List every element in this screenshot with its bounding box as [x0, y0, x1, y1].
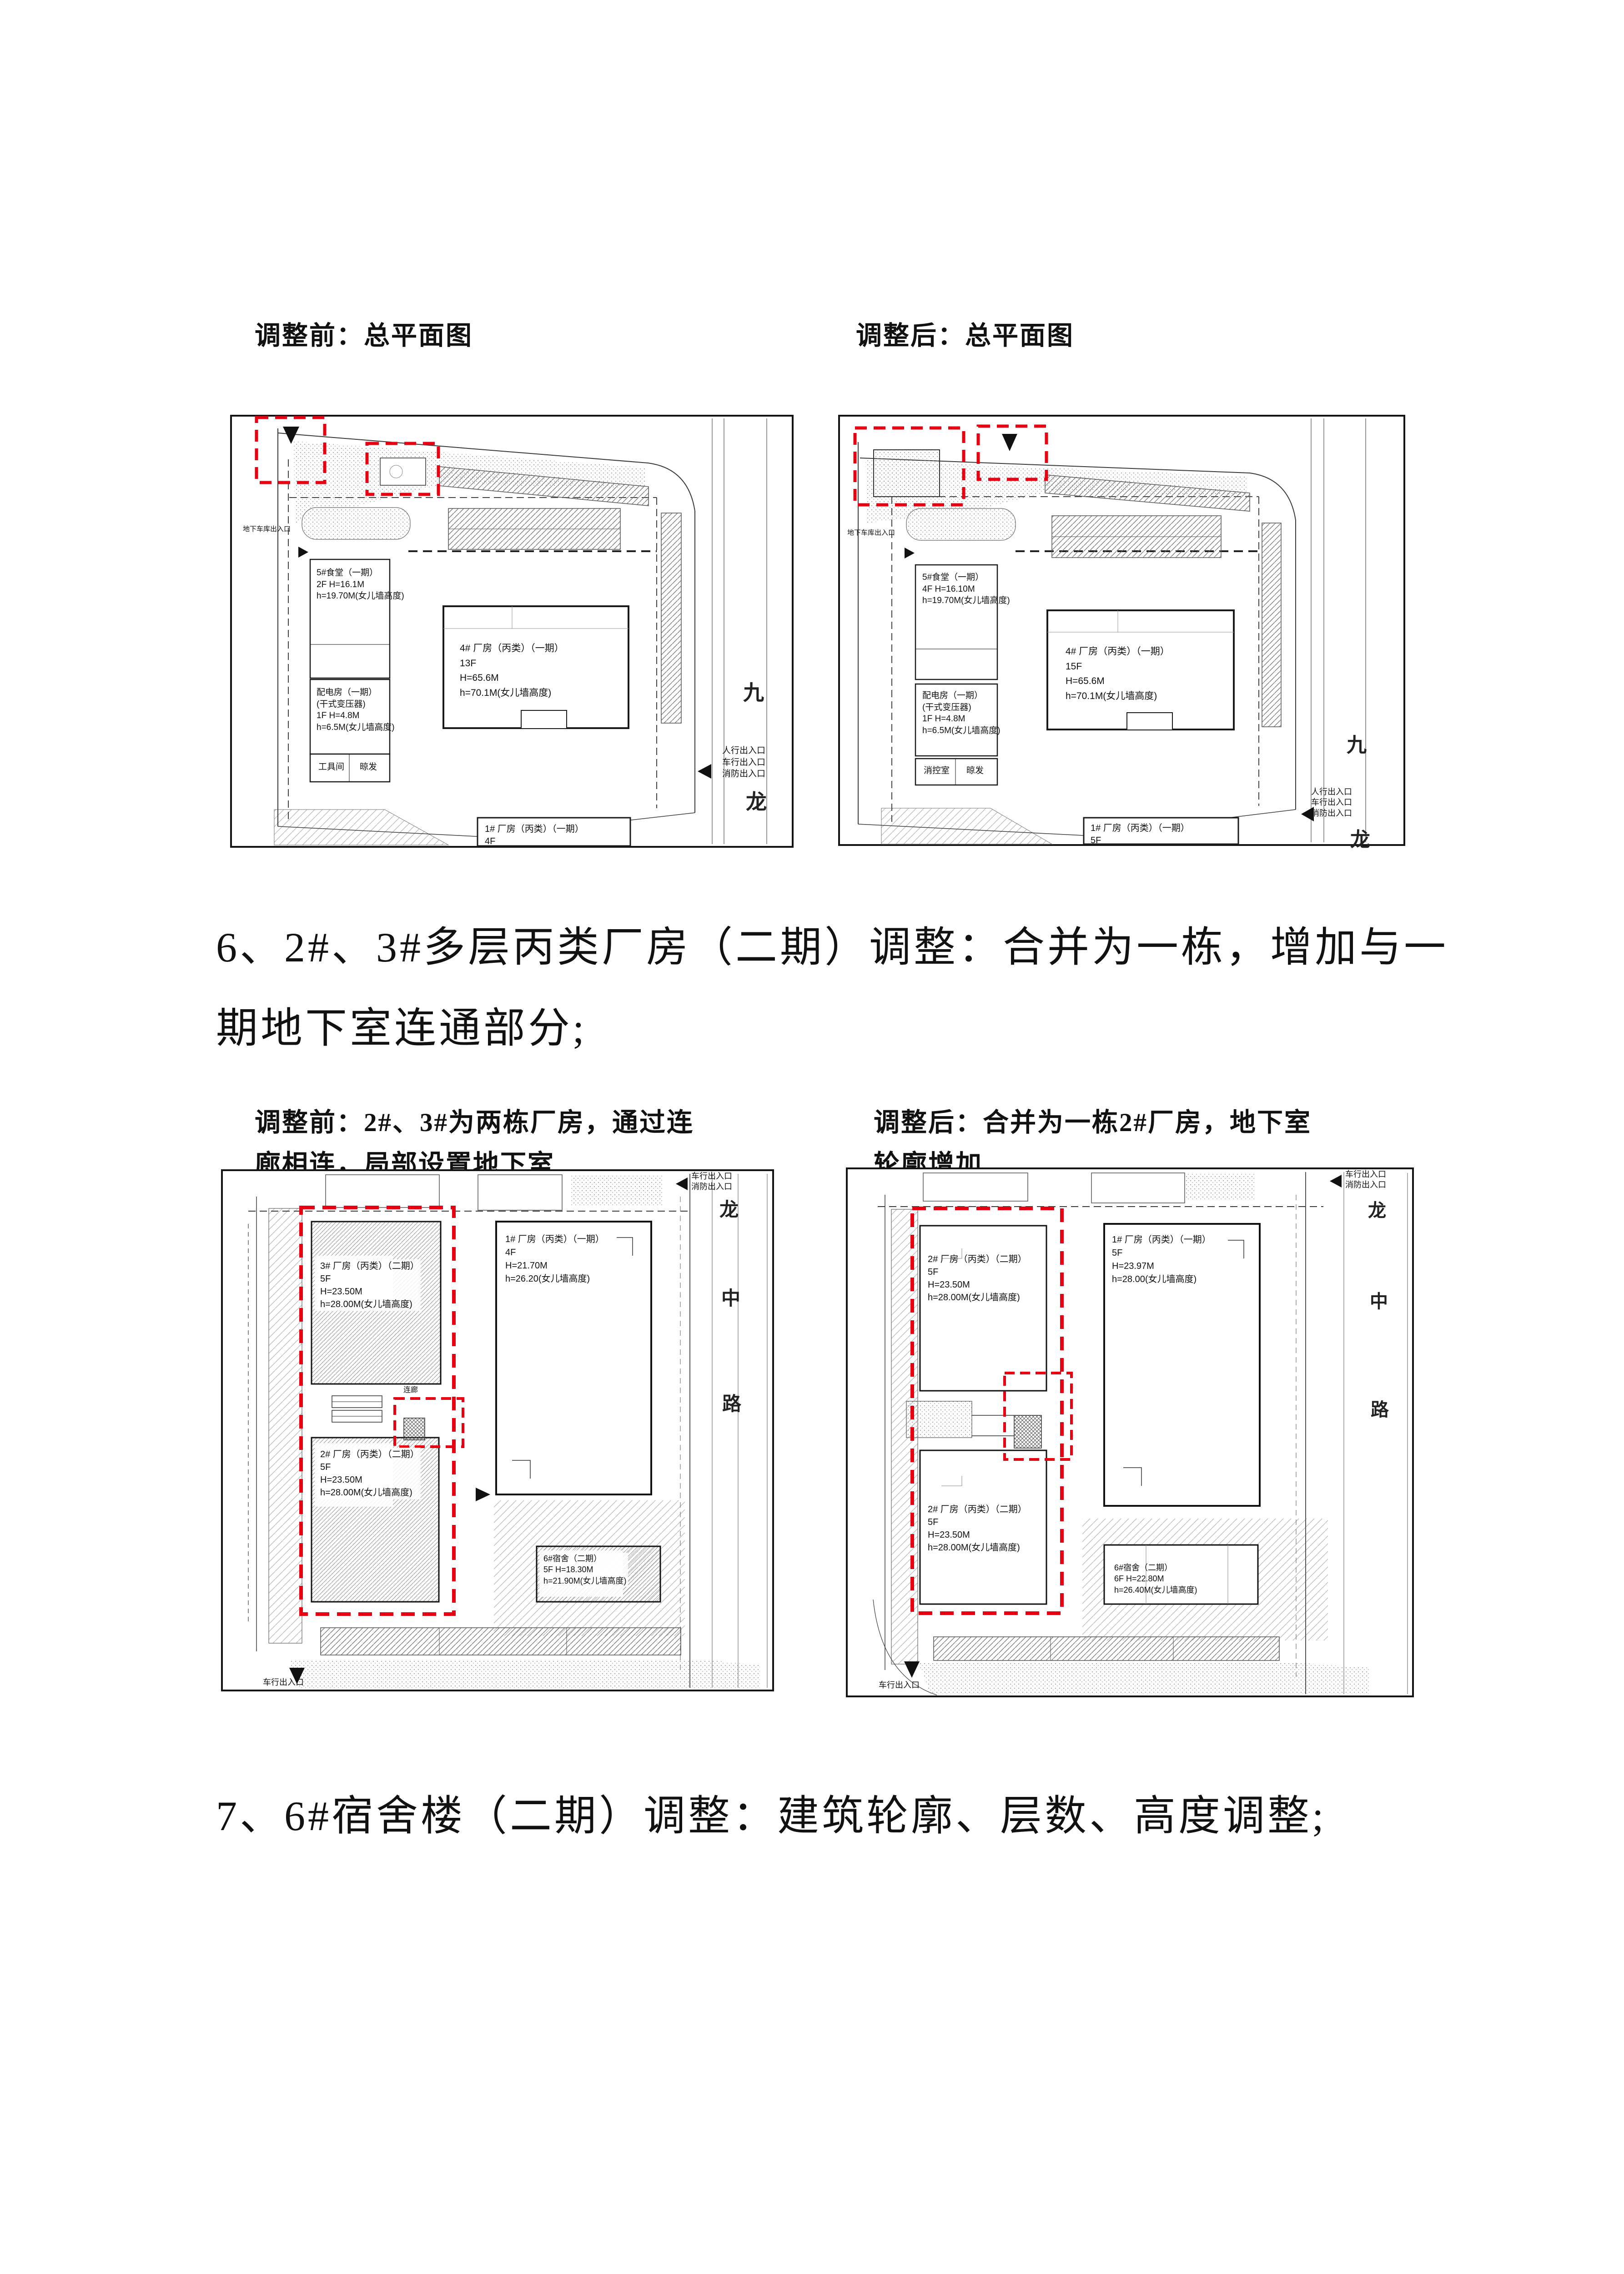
label-factory1: 1# 厂房（丙类）（一期）4F — [485, 823, 584, 848]
document-page: 调整前：总平面图 调整后：总平面图 — [0, 0, 1624, 2274]
label-corridor: 连廊 — [402, 1385, 419, 1396]
paragraph-7-line1: 7、6#宿舍楼（二期）调整：建筑轮廓、层数、高度调整; — [216, 1782, 1327, 1842]
label-factory3: 3# 厂房（丙类）（二期）5FH=23.50Mh=28.00M(女儿墙高度) — [319, 1259, 421, 1311]
label-factory2: 2# 厂房（丙类）（二期）5FH=23.50Mh=28.00M(女儿墙高度) — [319, 1448, 421, 1499]
road-name-longzhong-char1: 龙 — [1368, 1196, 1386, 1222]
caption-after-detail-line1: 调整后：合并为一栋2#厂房，地下室 — [874, 1102, 1312, 1139]
caption-after-total: 调整后：总平面图 — [856, 315, 1074, 352]
label-factory1: 1# 厂房（丙类）（一期）4FH=21.70Mh=26.20(女儿墙高度) — [505, 1233, 604, 1286]
label-factory2-south: 2# 厂房（丙类）（二期）5FH=23.50Mh=28.00M(女儿墙高度) — [928, 1503, 1027, 1554]
road-name-longzhong-char2: 中 — [1370, 1287, 1388, 1313]
label-entrances-top: 车行出入口消防出入口 — [1345, 1169, 1386, 1191]
road-name-jiulong-char1: 九 — [743, 676, 764, 706]
label-laundry: 晾发 — [360, 761, 377, 773]
parking-areas — [934, 1637, 1279, 1660]
label-entrance-bottom: 车行出入口 — [879, 1680, 920, 1690]
site-plan-before-total-linework — [230, 415, 794, 848]
road-name-longzhong-char2: 中 — [721, 1283, 740, 1311]
caption-before-total: 调整前：总平面图 — [255, 315, 473, 352]
label-factory2-north: 2# 厂房（丙类）（二期）5FH=23.50Mh=28.00M(女儿墙高度) — [928, 1253, 1027, 1304]
site-plan-before-detail: 3# 厂房（丙类）（二期）5FH=23.50Mh=28.00M(女儿墙高度) 2… — [221, 1169, 774, 1691]
road-name-jiulong-char1: 九 — [1347, 729, 1367, 758]
label-garage-entry: 地下车库出入口 — [847, 528, 895, 538]
label-entrances-top: 车行出入口消防出入口 — [691, 1171, 732, 1192]
label-entrances: 人行出入口车行出入口消防出入口 — [1311, 787, 1352, 819]
parking-areas — [321, 1628, 681, 1655]
label-factory4: 4# 厂房（丙类）（一期）15FH=65.6Mh=70.1M(女儿墙高度) — [1066, 644, 1170, 704]
label-factory4: 4# 厂房（丙类）（一期）13FH=65.6Mh=70.1M(女儿墙高度) — [460, 641, 564, 700]
site-plan-before-total: 5#食堂（一期）2F H=16.1Mh=19.70M(女儿墙高度) 配电房（一期… — [230, 415, 794, 848]
site-plan-before-detail-linework — [221, 1169, 774, 1691]
road-name-jiulong-char2: 龙 — [746, 785, 767, 815]
site-plan-after-total: 5#食堂（一期）4F H=16.10Mh=19.70M(女儿墙高度) 配电房（一… — [838, 415, 1405, 846]
site-plan-after-detail: 2# 厂房（丙类）（二期）5FH=23.50Mh=28.00M(女儿墙高度) 2… — [846, 1167, 1414, 1697]
label-laundry: 晾发 — [966, 765, 984, 777]
label-power-room: 配电房（一期）(干式变压器)1F H=4.8Mh=6.5M(女儿墙高度) — [922, 690, 1001, 737]
road-name-jiulong-char2: 龙 — [1350, 823, 1370, 852]
removed-structure — [380, 458, 426, 485]
label-canteen: 5#食堂（一期）4F H=16.10Mh=19.70M(女儿墙高度) — [922, 572, 1010, 607]
label-fire-control-room: 消控室 — [924, 765, 950, 777]
new-structure — [874, 450, 940, 497]
label-factory1: 1# 厂房（丙类）（一期）5F — [1091, 822, 1190, 847]
paragraph-6-line1: 6、2#、3#多层丙类厂房（二期）调整：合并为一栋，增加与一 — [216, 913, 1448, 974]
road-name-longzhong-char3: 路 — [722, 1389, 741, 1416]
basement-structure — [404, 1418, 425, 1440]
label-dorm6: 6#宿舍（二期）5F H=18.30Mh=21.90M(女儿墙高度) — [542, 1553, 628, 1587]
label-entrances: 人行出入口车行出入口消防出入口 — [722, 745, 765, 780]
label-power-room: 配电房（一期）(干式变压器)1F H=4.8Mh=6.5M(女儿墙高度) — [317, 687, 395, 734]
label-garage-entry: 地下车库出入口 — [243, 525, 291, 534]
paragraph-6-line2: 期地下室连通部分; — [216, 994, 587, 1055]
label-entrance-bottom: 车行出入口 — [263, 1677, 304, 1688]
site-plan-after-total-linework — [838, 415, 1405, 846]
label-dorm6: 6#宿舍（二期）6F H=22.80Mh=26.40M(女儿墙高度) — [1114, 1562, 1197, 1595]
label-factory1: 1# 厂房（丙类）（一期）5FH=23.97Mh=28.00(女儿墙高度) — [1112, 1233, 1211, 1286]
label-canteen: 5#食堂（一期）2F H=16.1Mh=19.70M(女儿墙高度) — [317, 567, 404, 602]
caption-before-detail-line1: 调整前：2#、3#为两栋厂房，通过连 — [255, 1102, 694, 1139]
label-tool-room: 工具间 — [318, 761, 344, 773]
road-name-longzhong-char1: 龙 — [719, 1194, 739, 1222]
road-name-longzhong-char3: 路 — [1371, 1395, 1389, 1421]
